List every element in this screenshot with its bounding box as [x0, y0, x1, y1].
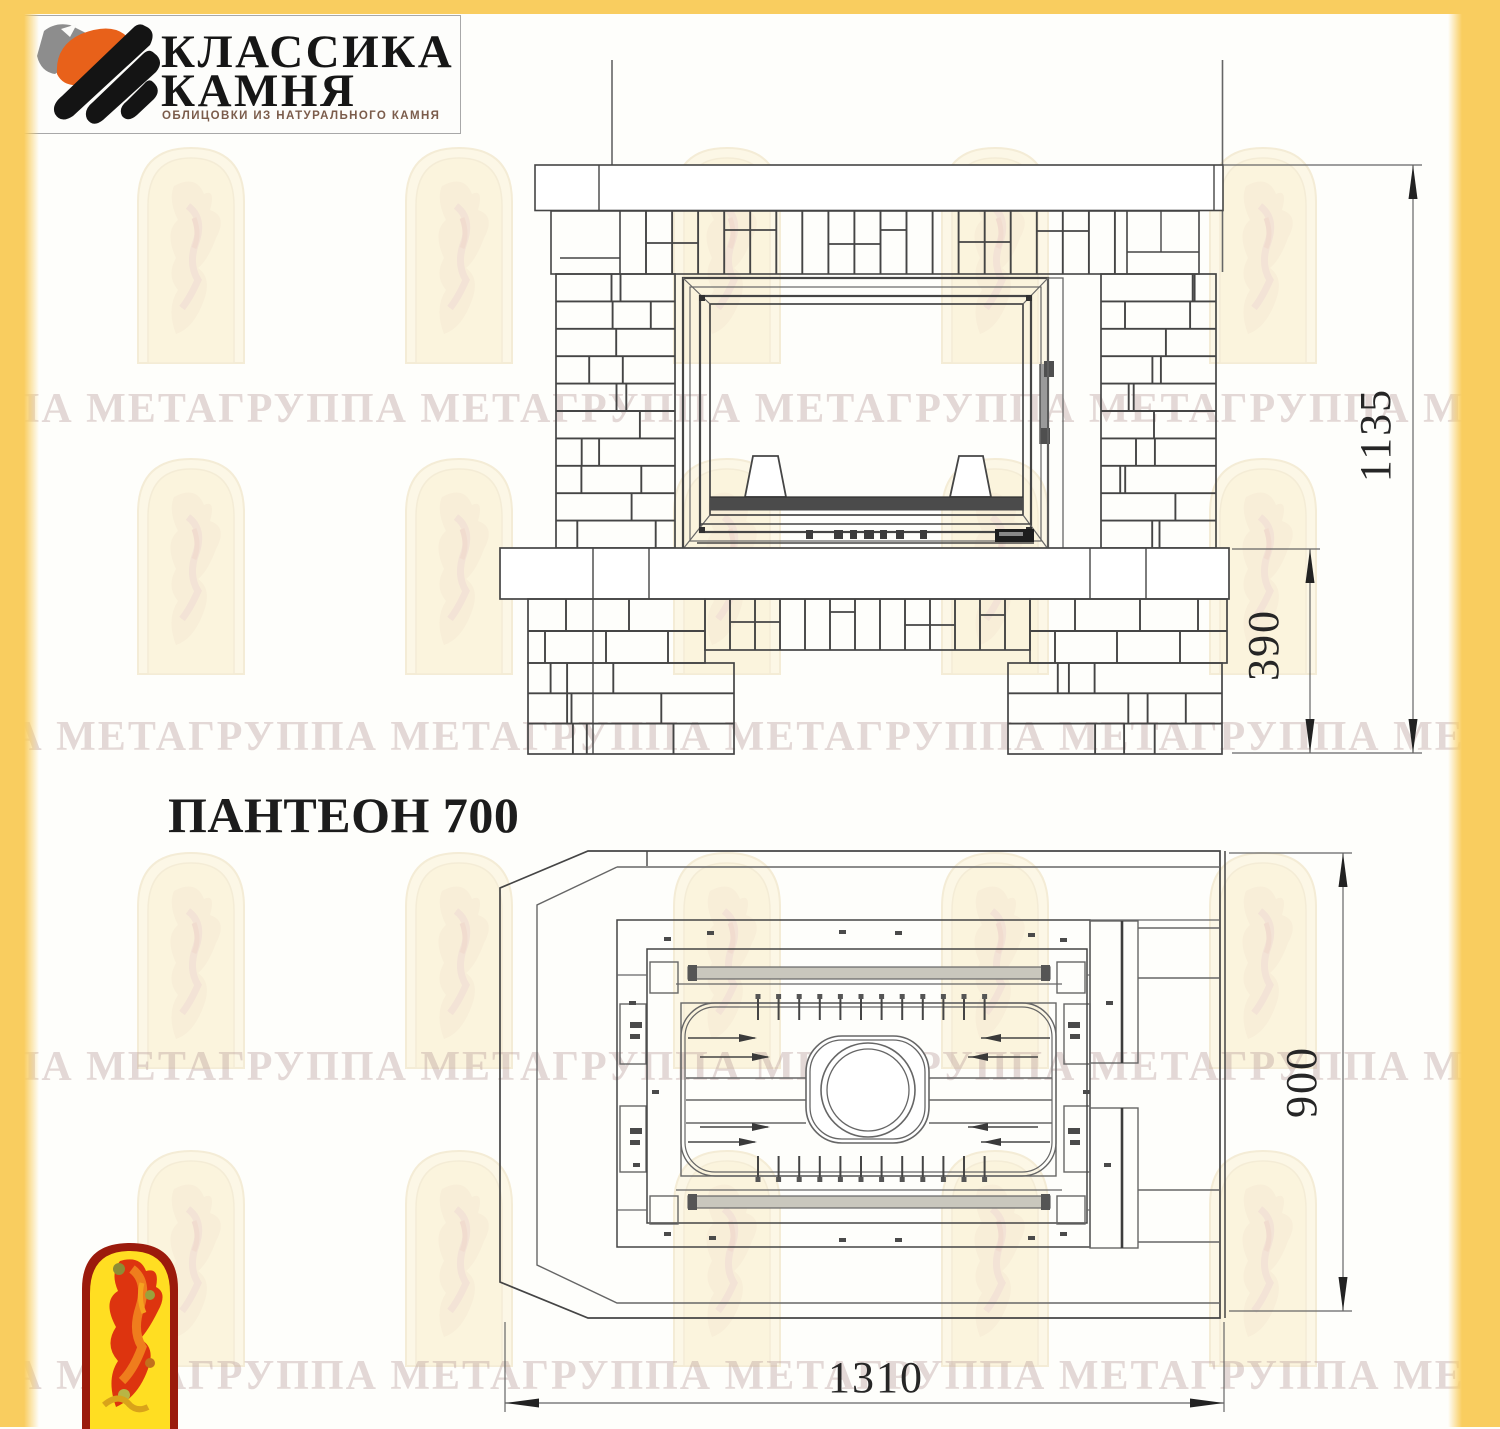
- svg-text:390: 390: [1239, 609, 1288, 681]
- svg-text:1135: 1135: [1351, 388, 1400, 482]
- svg-text:900: 900: [1277, 1046, 1326, 1118]
